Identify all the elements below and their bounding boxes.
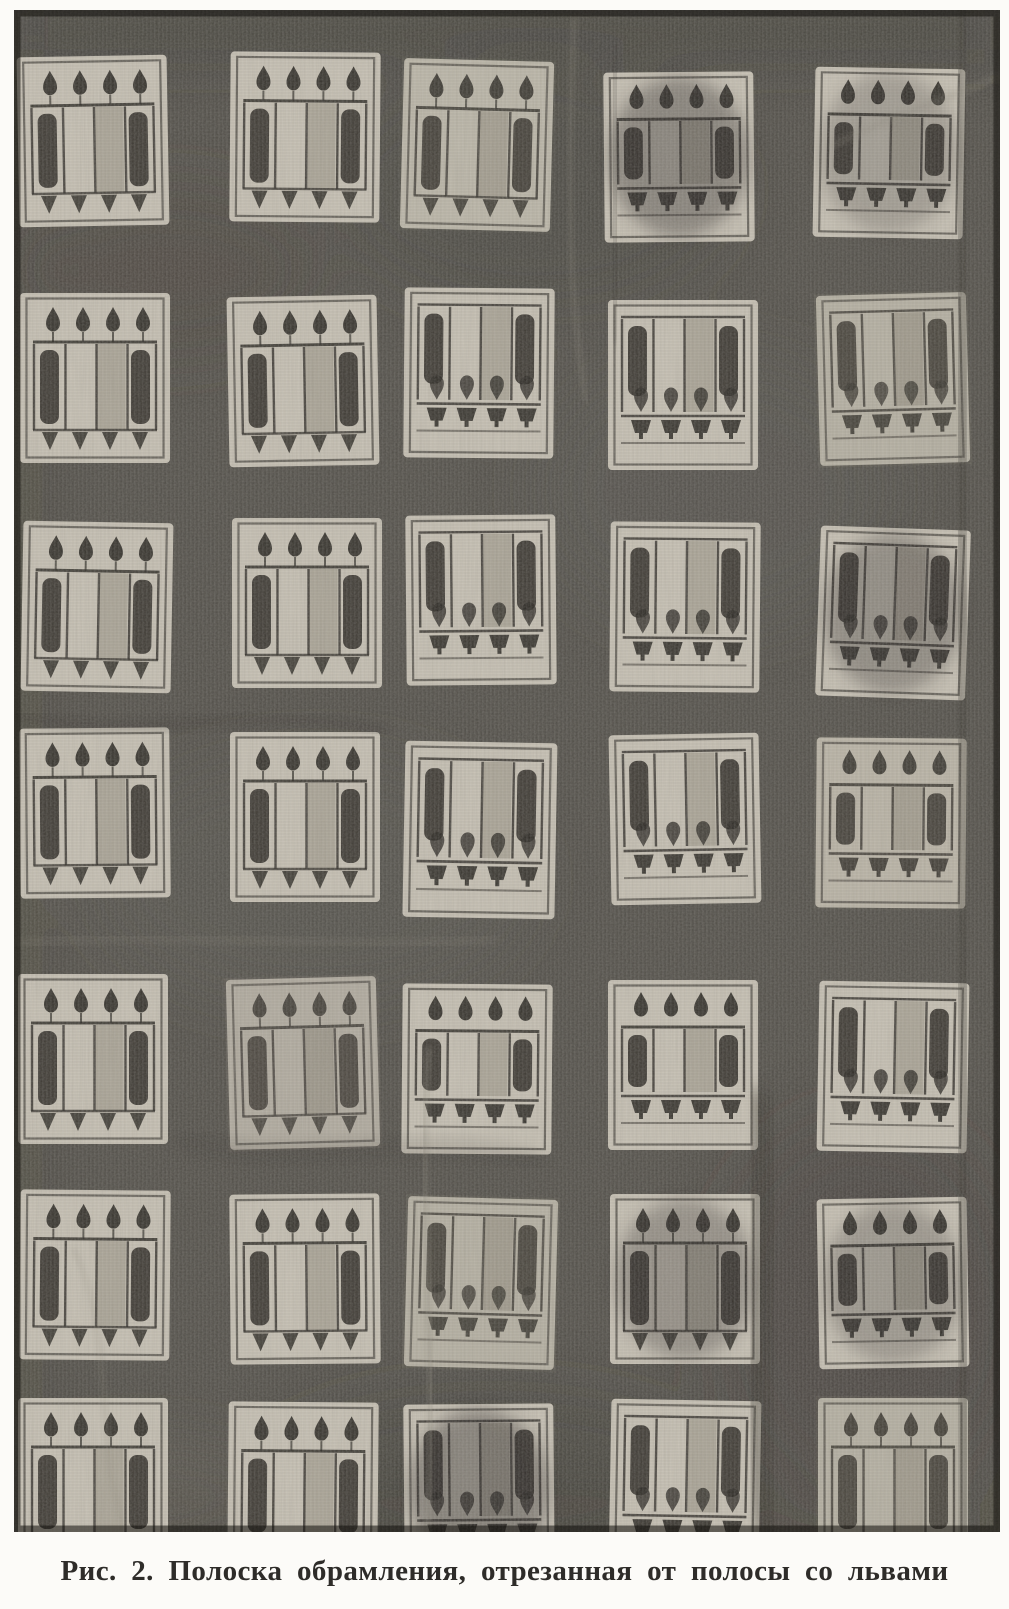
figure-caption: Рис. 2. Полоска обрамления, отрезанная о… <box>0 1553 1009 1589</box>
photo-texture <box>14 10 1000 1532</box>
textile-pattern-svg <box>14 10 1000 1532</box>
book-page: Рис. 2. Полоска обрамления, отрезанная о… <box>0 0 1009 1609</box>
textile-photograph <box>14 10 1000 1532</box>
